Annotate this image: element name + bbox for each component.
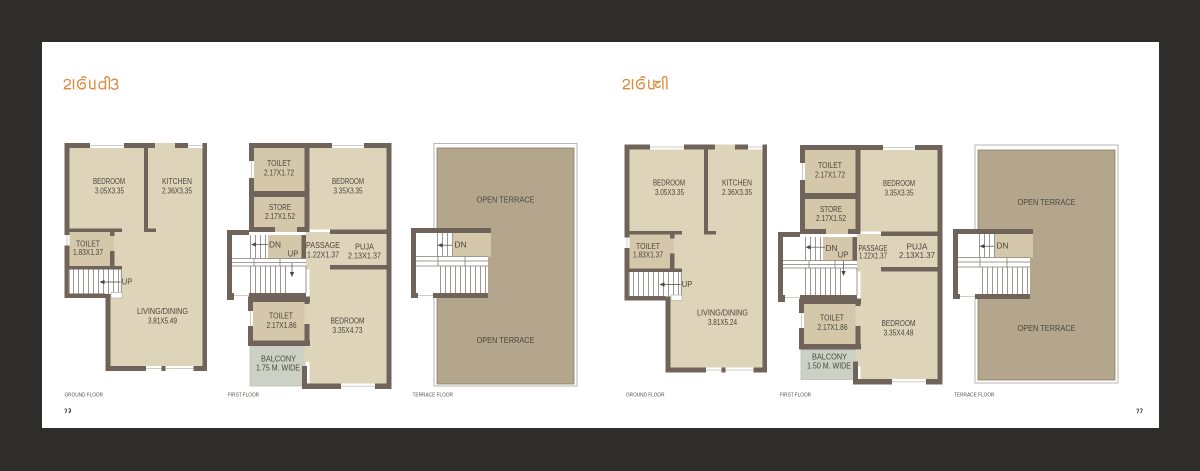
svg-text:BEDROOM: BEDROOM <box>331 317 365 326</box>
svg-text:GROUND FLOOR: GROUND FLOOR <box>65 393 104 399</box>
svg-text:2.13X1.37: 2.13X1.37 <box>899 251 936 260</box>
svg-text:TOILET: TOILET <box>269 312 293 321</box>
svg-text:2.17X1.86: 2.17X1.86 <box>818 323 848 332</box>
svg-text:BALCONY: BALCONY <box>261 355 297 364</box>
svg-text:STORE: STORE <box>820 205 842 214</box>
svg-text:3.05X3.35: 3.05X3.35 <box>655 188 684 197</box>
svg-text:UP: UP <box>838 251 849 260</box>
svg-text:3.81X5.49: 3.81X5.49 <box>148 317 177 326</box>
svg-text:2.36X3.35: 2.36X3.35 <box>722 188 752 197</box>
svg-text:1.75 M. WIDE: 1.75 M. WIDE <box>256 364 300 373</box>
svg-text:BEDROOM: BEDROOM <box>332 177 364 186</box>
svg-text:DN: DN <box>455 241 467 250</box>
svg-text:1.22X1.37: 1.22X1.37 <box>307 251 339 260</box>
svg-text:UP: UP <box>122 278 133 287</box>
svg-text:3.05X3.35: 3.05X3.35 <box>95 187 124 196</box>
svg-text:2.17X1.72: 2.17X1.72 <box>264 169 294 178</box>
svg-text:3.35X3.35: 3.35X3.35 <box>885 189 914 198</box>
svg-text:TOILET: TOILET <box>820 314 844 323</box>
svg-text:STORE: STORE <box>269 203 291 212</box>
svg-text:1.22X1.37: 1.22X1.37 <box>859 251 887 260</box>
svg-text:BALCONY: BALCONY <box>812 353 848 362</box>
svg-text:OPEN TERRACE: OPEN TERRACE <box>1018 324 1076 333</box>
svg-text:TERRACE FLOOR: TERRACE FLOOR <box>954 393 995 399</box>
svg-text:FIRST FLOOR: FIRST FLOOR <box>780 393 811 399</box>
svg-text:BEDROOM: BEDROOM <box>882 319 916 328</box>
svg-text:DN: DN <box>826 244 838 253</box>
svg-text:BEDROOM: BEDROOM <box>653 179 685 188</box>
svg-text:FIRST FLOOR: FIRST FLOOR <box>228 393 259 399</box>
svg-text:OPEN TERRACE: OPEN TERRACE <box>1018 198 1076 207</box>
svg-text:KITCHEN: KITCHEN <box>162 177 192 186</box>
svg-text:TOILET: TOILET <box>818 161 842 170</box>
svg-text:TERRACE FLOOR: TERRACE FLOOR <box>413 393 454 399</box>
svg-text:PASSAGE: PASSAGE <box>306 241 340 250</box>
svg-text:2.17X1.86: 2.17X1.86 <box>267 321 297 330</box>
svg-text:1.83X1.37: 1.83X1.37 <box>73 248 103 257</box>
svg-text:KITCHEN: KITCHEN <box>722 179 752 188</box>
svg-text:UP: UP <box>682 280 693 289</box>
svg-text:LIVING/DINING: LIVING/DINING <box>697 309 748 318</box>
svg-text:1.83X1.37: 1.83X1.37 <box>633 251 663 260</box>
svg-text:2.17X1.52: 2.17X1.52 <box>265 212 295 221</box>
svg-text:2.13X1.37: 2.13X1.37 <box>348 252 381 261</box>
svg-text:3.35X4.73: 3.35X4.73 <box>333 326 363 335</box>
svg-text:BEDROOM: BEDROOM <box>93 177 125 186</box>
svg-text:DN: DN <box>997 242 1009 251</box>
svg-text:3.81X5.24: 3.81X5.24 <box>708 318 737 327</box>
svg-text:3.35X3.35: 3.35X3.35 <box>334 187 363 196</box>
svg-text:2.17X1.52: 2.17X1.52 <box>816 214 846 223</box>
svg-text:GROUND FLOOR: GROUND FLOOR <box>626 393 665 399</box>
svg-text:TOILET: TOILET <box>267 159 291 168</box>
svg-text:OPEN TERRACE: OPEN TERRACE <box>477 196 535 205</box>
svg-text:DN: DN <box>269 241 281 250</box>
svg-text:UP: UP <box>288 250 299 259</box>
svg-text:PUJA: PUJA <box>355 243 375 252</box>
svg-text:1.50 M. WIDE: 1.50 M. WIDE <box>807 362 851 371</box>
svg-text:2.17X1.72: 2.17X1.72 <box>815 171 845 180</box>
svg-text:2.36X3.35: 2.36X3.35 <box>162 187 192 196</box>
svg-text:3.35X4.48: 3.35X4.48 <box>884 329 914 338</box>
svg-text:LIVING/DINING: LIVING/DINING <box>137 307 188 316</box>
svg-text:OPEN TERRACE: OPEN TERRACE <box>477 336 535 345</box>
svg-text:BEDROOM: BEDROOM <box>883 179 915 188</box>
